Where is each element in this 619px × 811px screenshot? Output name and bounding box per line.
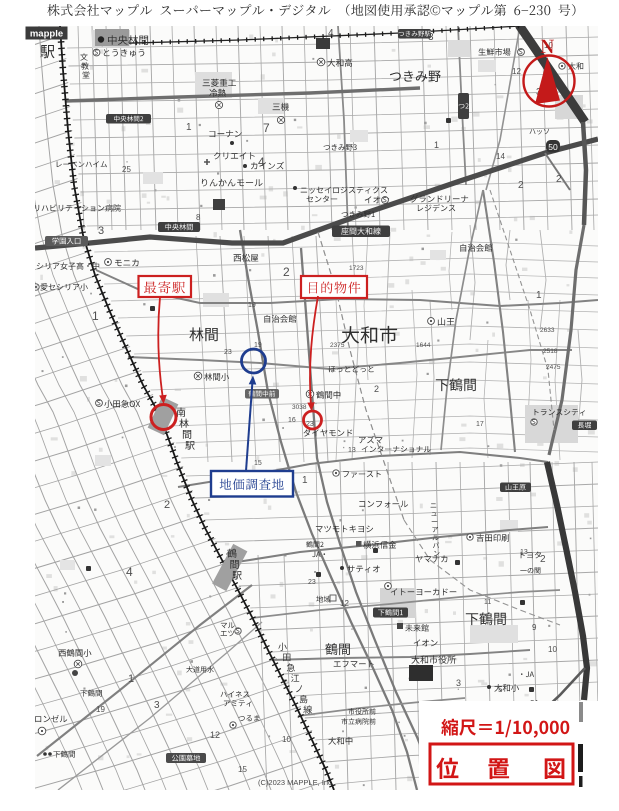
svg-text:11: 11 — [484, 599, 491, 606]
svg-text:25: 25 — [122, 165, 131, 174]
svg-text:3: 3 — [154, 700, 160, 711]
svg-text:13: 13 — [520, 549, 528, 556]
svg-text:mapple: mapple — [30, 29, 63, 40]
svg-text:9: 9 — [532, 623, 537, 632]
svg-text:12: 12 — [340, 599, 349, 608]
svg-text:4: 4 — [258, 155, 265, 169]
svg-text:4: 4 — [126, 565, 133, 579]
svg-text:2375: 2375 — [330, 342, 345, 349]
svg-text:17: 17 — [476, 421, 484, 428]
svg-text:10: 10 — [548, 645, 557, 654]
svg-text:1723: 1723 — [349, 265, 364, 272]
svg-text:(C)2023 MAPPLE, Inc.: (C)2023 MAPPLE, Inc. — [258, 778, 334, 787]
svg-text:1: 1 — [92, 309, 99, 323]
svg-text:2633: 2633 — [540, 327, 555, 334]
svg-text:2: 2 — [540, 554, 546, 565]
svg-text:16: 16 — [288, 417, 296, 424]
svg-text:1: 1 — [186, 122, 192, 133]
svg-text:3038: 3038 — [292, 404, 307, 411]
svg-text:2: 2 — [374, 384, 379, 394]
svg-text:2: 2 — [556, 174, 562, 185]
svg-text:12: 12 — [210, 730, 220, 740]
svg-text:15: 15 — [254, 460, 262, 467]
svg-text:1: 1 — [434, 140, 439, 150]
svg-text:2518: 2518 — [543, 348, 558, 355]
svg-text:1: 1 — [536, 290, 542, 301]
svg-text:2: 2 — [164, 499, 170, 511]
svg-text:2475: 2475 — [546, 364, 561, 371]
svg-text:10: 10 — [282, 735, 291, 744]
svg-text:50: 50 — [548, 142, 558, 152]
svg-text:13: 13 — [348, 447, 356, 454]
svg-text:3: 3 — [456, 678, 461, 688]
svg-text:14: 14 — [496, 152, 505, 161]
svg-text:4: 4 — [328, 28, 334, 39]
svg-text:19: 19 — [96, 705, 105, 714]
svg-text:23: 23 — [308, 579, 316, 586]
svg-text:23: 23 — [224, 349, 232, 356]
svg-text:7: 7 — [263, 121, 270, 135]
svg-text:3: 3 — [98, 225, 104, 237]
svg-text:15: 15 — [238, 765, 247, 774]
svg-text:12: 12 — [512, 67, 521, 76]
svg-text:2: 2 — [518, 180, 524, 191]
svg-text:19: 19 — [248, 302, 256, 309]
svg-text:5: 5 — [498, 685, 503, 694]
svg-text:3: 3 — [428, 32, 434, 43]
svg-text:1644: 1644 — [416, 342, 431, 349]
svg-text:2: 2 — [283, 265, 290, 279]
svg-text:1: 1 — [302, 475, 308, 486]
svg-text:1: 1 — [128, 673, 134, 685]
svg-text:8: 8 — [196, 213, 201, 222]
